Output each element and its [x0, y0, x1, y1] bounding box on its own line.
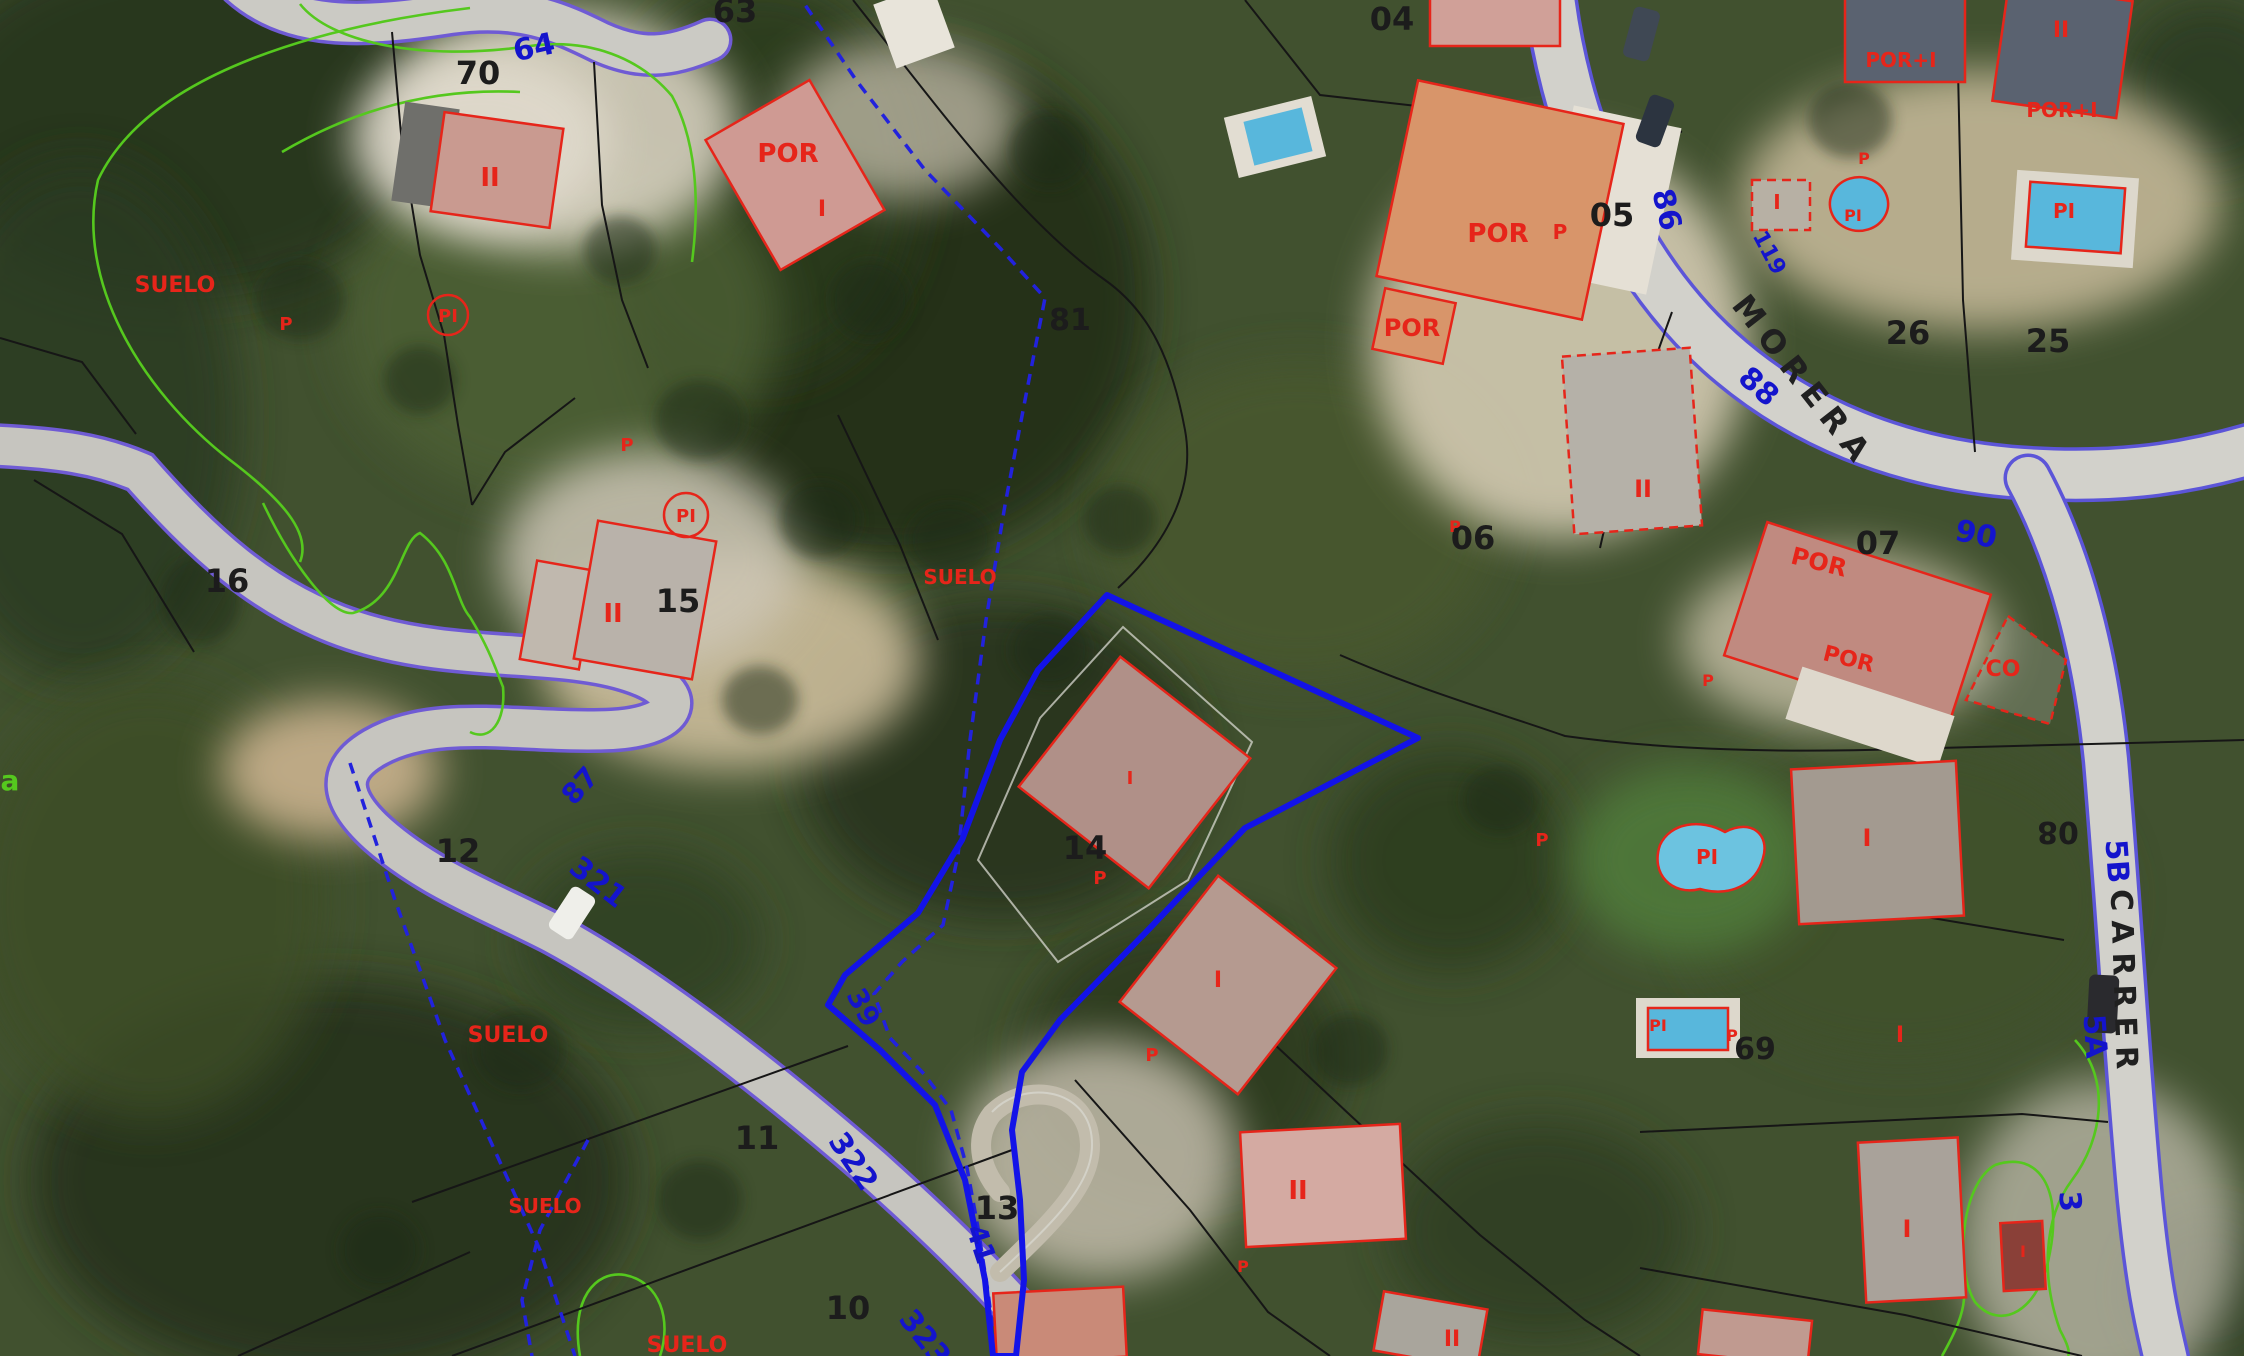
building-code-label: P — [1702, 671, 1714, 690]
building-code-label: I — [818, 197, 826, 222]
building-code-label: PI — [2053, 199, 2075, 223]
vegetation-blob — [1462, 766, 1538, 834]
vegetation-blob — [658, 1160, 742, 1240]
vegetation-blob — [960, 1040, 1240, 1280]
building-code-label: CO — [1986, 657, 2021, 682]
road-number-label: 5B — [2097, 838, 2135, 884]
parcel-number-label: 69 — [1734, 1032, 1776, 1067]
building — [1752, 180, 1810, 230]
parcel-number-label: 14 — [1063, 829, 1108, 867]
vegetation-blob — [340, 1212, 420, 1288]
building-code-label: I — [1903, 1215, 1912, 1243]
building-code-label: P — [279, 314, 292, 335]
parcel-number-label: 07 — [1856, 524, 1901, 562]
building — [1562, 348, 1702, 534]
parcel-number-label: 13 — [975, 1189, 1020, 1227]
building — [993, 1287, 1126, 1356]
parcel-number-label: 04 — [1370, 0, 1415, 38]
vegetation-blob — [1808, 82, 1892, 158]
building-code-label: II — [1288, 1176, 1307, 1206]
vegetation-blob — [1312, 1014, 1388, 1086]
building-code-label: PI — [676, 506, 696, 527]
parcel-number-label: 05 — [1590, 196, 1635, 234]
land-use-label: SUELO — [923, 565, 996, 589]
building-code-label: II — [1444, 1327, 1460, 1352]
building — [1430, 0, 1560, 46]
parcel-number-label: 16 — [205, 562, 250, 600]
building-code-label: I — [1896, 1023, 1904, 1048]
parcel-number-label: 08 — [2037, 814, 2079, 849]
vegetation-blob — [780, 482, 860, 558]
building-code-label: POR+I — [1865, 48, 1936, 72]
building-code-label: PI — [1696, 845, 1718, 869]
cadastral-map-viewport[interactable]: Cadastral aerial map viewer 637004058126… — [0, 0, 2244, 1356]
land-use-label: SUELO — [468, 1023, 549, 1048]
building-code-label: P — [1535, 830, 1548, 851]
parcel-number-label: 63 — [713, 0, 758, 30]
building-code-label: I — [1214, 968, 1222, 993]
building-code-label: POR — [1384, 314, 1440, 342]
building-code-label: P — [1237, 1257, 1249, 1276]
building-code-label: P — [1093, 868, 1106, 889]
building-code-label: POR+I — [2026, 98, 2097, 122]
building-code-label: P — [1858, 149, 1870, 168]
vegetation-blob — [476, 1010, 564, 1090]
contour-text-label: a — [1, 764, 20, 797]
building-code-label: I — [1773, 190, 1780, 214]
parcel-number-label: 70 — [456, 54, 501, 92]
building-code-label: P — [1449, 517, 1461, 536]
land-use-label: SUELO — [508, 1194, 581, 1218]
building-code-label: PI — [438, 306, 458, 327]
building-code-label: I — [1127, 768, 1134, 789]
street-name-label: CARRER — [2103, 889, 2145, 1079]
vegetation-blob — [1330, 750, 1570, 970]
land-use-label: SUELO — [647, 1333, 728, 1356]
parcel-number-label: 15 — [656, 582, 701, 620]
building-code-label: II — [480, 163, 499, 193]
building-code-label: I — [1863, 824, 1872, 852]
building-code-label: P — [1145, 1045, 1158, 1066]
vegetation-blob — [256, 260, 344, 340]
vegetation-blob — [1084, 486, 1156, 554]
vegetation-blob — [655, 380, 745, 460]
building — [1240, 1124, 1406, 1247]
building — [1377, 80, 1624, 319]
building-code-label: II — [1634, 475, 1652, 503]
parcel-number-label: 10 — [826, 1289, 871, 1327]
building-code-label: P — [620, 435, 633, 456]
vegetation-blob — [1010, 112, 1090, 188]
vegetation-blob — [384, 346, 456, 414]
vegetation-blob — [830, 260, 910, 340]
building-code-label: P — [1726, 1026, 1738, 1045]
cadastral-map[interactable]: 6370040581262516150607081214111310696486… — [0, 0, 2244, 1356]
parcel-number-label: 81 — [1049, 303, 1091, 338]
building-code-label: PI — [1649, 1016, 1667, 1035]
building — [2026, 182, 2125, 253]
parcel-number-label: 26 — [1886, 314, 1931, 352]
building-code-label: I — [2020, 1242, 2026, 1261]
building-code-label: II — [2053, 18, 2069, 43]
parcel-number-label: 11 — [735, 1119, 780, 1157]
road-number-label: 3 — [2051, 1190, 2087, 1213]
building-code-label: POR — [757, 139, 818, 169]
building-code-label: PI — [1844, 206, 1862, 225]
vegetation-blob — [584, 216, 656, 284]
land-use-label: SUELO — [135, 273, 216, 298]
building-code-label: II — [603, 599, 622, 629]
building-code-label: P — [1553, 220, 1568, 244]
parcel-number-label: 12 — [436, 832, 481, 870]
building — [1858, 1137, 1966, 1302]
building — [1791, 761, 1964, 924]
parcel-number-label: 25 — [2026, 322, 2071, 360]
vegetation-blob — [722, 666, 798, 734]
building-code-label: POR — [1467, 219, 1528, 249]
